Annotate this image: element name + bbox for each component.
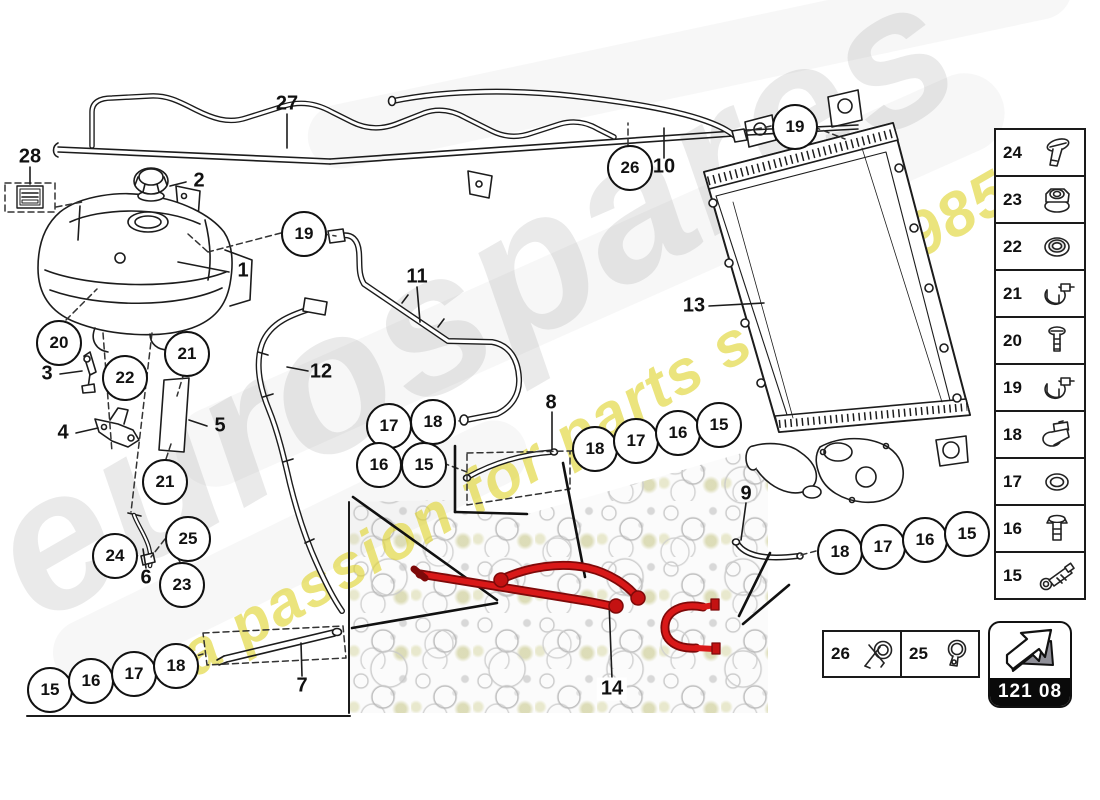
callout-circle-20: 20 [36, 320, 82, 366]
callout-circle-18: 18 [410, 399, 456, 445]
part-number-2: 2 [193, 170, 204, 193]
legend-item-26: 26 [822, 630, 902, 678]
sidebar-item-17: 17 [994, 457, 1086, 506]
legend-item-number: 25 [909, 644, 935, 664]
part-number-13: 13 [683, 295, 705, 318]
sidebar-item-19: 19 [994, 363, 1086, 412]
part-number-11: 11 [406, 266, 427, 289]
callout-circle-15: 15 [27, 667, 73, 713]
legend-item-number: 26 [831, 644, 857, 664]
sidebar-item-18: 18 [994, 410, 1086, 459]
part-number-8: 8 [545, 392, 556, 415]
flange-nut-icon [1029, 182, 1084, 218]
part-number-5: 5 [214, 415, 225, 438]
part-number-4: 4 [57, 422, 68, 445]
sidebar-item-23: 23 [994, 175, 1086, 224]
pad-5-drawing [159, 378, 189, 452]
callout-circle-19: 19 [281, 211, 327, 257]
sidebar-item-22: 22 [994, 222, 1086, 271]
callout-circle-24: 24 [92, 533, 138, 579]
part-number-7: 7 [296, 675, 307, 698]
sidebar-item-number: 23 [1003, 190, 1029, 210]
callout-circle-17: 17 [613, 418, 659, 464]
sensor-3-drawing [82, 352, 96, 393]
callout-circle-23: 23 [159, 562, 205, 608]
hose-clamp-band-icon [1029, 370, 1084, 406]
callout-circle-17: 17 [860, 524, 906, 570]
callout-circle-26: 26 [607, 145, 653, 191]
spring-clip-icon [1029, 417, 1084, 453]
hex-bolt-icon [1029, 511, 1084, 547]
callout-circle-25: 25 [165, 516, 211, 562]
tube-8-drawing [464, 449, 558, 481]
flat-head-screw-icon [1029, 135, 1084, 171]
callout-circle-19: 19 [772, 104, 818, 150]
part-number-10: 10 [653, 156, 675, 179]
sidebar-item-number: 24 [1003, 143, 1029, 163]
tank-cap-drawing [134, 168, 168, 201]
clamps-legend: 2625 [822, 630, 980, 678]
callout-circle-16: 16 [902, 517, 948, 563]
clamp-with-pliers-icon [857, 636, 900, 672]
part-number-3: 3 [41, 363, 52, 386]
legend-item-25: 25 [900, 630, 980, 678]
callout-circle-18: 18 [572, 426, 618, 472]
part-number-6: 6 [140, 567, 151, 590]
seal-ring-icon [1029, 229, 1084, 265]
sticker-28-drawing [17, 186, 43, 208]
banjo-bolt-icon [1029, 558, 1084, 594]
radiator-drawing [704, 90, 970, 503]
callout-circle-16: 16 [68, 658, 114, 704]
callout-circle-15: 15 [944, 511, 990, 557]
sidebar-item-number: 21 [1003, 284, 1029, 304]
part-number-14: 14 [597, 678, 627, 701]
fasteners-sidebar: 24232221201918171615 [994, 128, 1086, 600]
callout-circle-15: 15 [401, 442, 447, 488]
pan-head-screw-icon [1029, 323, 1084, 359]
section-arrow-icon [990, 623, 1070, 678]
section-code: 121 08 [990, 678, 1070, 706]
sidebar-item-16: 16 [994, 504, 1086, 553]
callout-circle-17: 17 [111, 651, 157, 697]
callout-circle-16: 16 [655, 410, 701, 456]
sidebar-item-15: 15 [994, 551, 1086, 600]
sidebar-item-number: 22 [1003, 237, 1029, 257]
section-badge: 121 08 [988, 621, 1072, 708]
bracket-4-drawing [95, 408, 139, 447]
part-number-28: 28 [19, 146, 41, 169]
callout-circle-21: 21 [142, 459, 188, 505]
sidebar-item-number: 15 [1003, 566, 1029, 586]
callout-circle-18: 18 [153, 643, 199, 689]
hose-clamp-ear-icon [935, 636, 978, 672]
sidebar-item-number: 20 [1003, 331, 1029, 351]
callout-circle-15: 15 [696, 402, 742, 448]
sidebar-item-number: 19 [1003, 378, 1029, 398]
hose-11-drawing [328, 229, 519, 425]
sidebar-item-20: 20 [994, 316, 1086, 365]
sidebar-item-number: 16 [1003, 519, 1029, 539]
hose-clamp-band-icon [1029, 276, 1084, 312]
callout-circle-16: 16 [356, 442, 402, 488]
sidebar-item-24: 24 [994, 128, 1086, 177]
sidebar-item-number: 17 [1003, 472, 1029, 492]
callout-circle-22: 22 [102, 355, 148, 401]
sidebar-item-21: 21 [994, 269, 1086, 318]
sidebar-item-number: 18 [1003, 425, 1029, 445]
part-number-27: 27 [276, 93, 298, 116]
parts-diagram-page: eurospares a passion for parts since 198… [0, 0, 1100, 800]
callout-circle-21: 21 [164, 331, 210, 377]
washer-icon [1029, 464, 1084, 500]
part-number-9: 9 [740, 483, 751, 506]
callout-circle-18: 18 [817, 529, 863, 575]
part-number-1: 1 [237, 260, 248, 283]
hose-12-drawing [258, 298, 342, 611]
part-number-12: 12 [310, 361, 332, 384]
